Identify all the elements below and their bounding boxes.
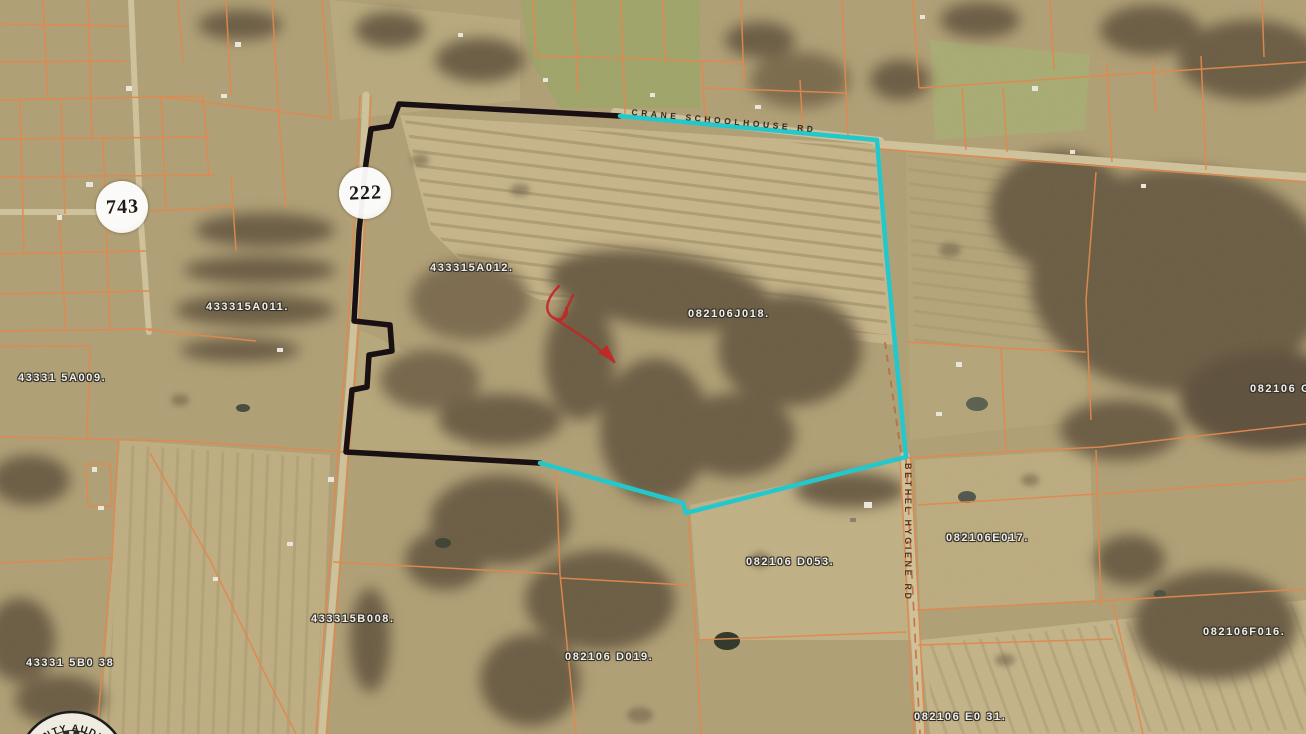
parcel-label-082106J018: 082106J018. bbox=[688, 308, 770, 320]
parcel-label-433315A011: 433315A011. bbox=[206, 301, 289, 313]
route-marker-743: 743 bbox=[96, 181, 148, 233]
parcel-label-082106E017: 082106E017. bbox=[946, 532, 1029, 544]
route-number-222: 222 bbox=[348, 181, 382, 205]
parcel-label-082106D053: 082106 D053. bbox=[746, 556, 834, 568]
parcel-label-082106G-clipped: 082106 G bbox=[1250, 383, 1306, 395]
parcel-label-082106D019: 082106 D019. bbox=[565, 651, 653, 663]
road-label-right: BETHEL HYGIENE RD bbox=[903, 463, 913, 602]
parcel-label-082106E031: 082106 E0 31. bbox=[914, 711, 1006, 723]
parcel-label-433315A009: 43331 5A009. bbox=[18, 372, 106, 384]
map-canvas[interactable]: COUNTY AUDITOR CRANE SCHOOLHOUSE RD BETH… bbox=[0, 0, 1306, 734]
route-marker-222: 222 bbox=[339, 167, 391, 219]
parcel-label-433315A012: 433315A012. bbox=[430, 262, 514, 274]
parcel-label-082106F016: 082106F016. bbox=[1203, 626, 1285, 638]
route-number-743: 743 bbox=[105, 195, 139, 219]
parcel-label-433315B008: 433315B008. bbox=[311, 613, 395, 625]
parcel-label-433315B038: 43331 5B0 38 bbox=[26, 657, 114, 669]
